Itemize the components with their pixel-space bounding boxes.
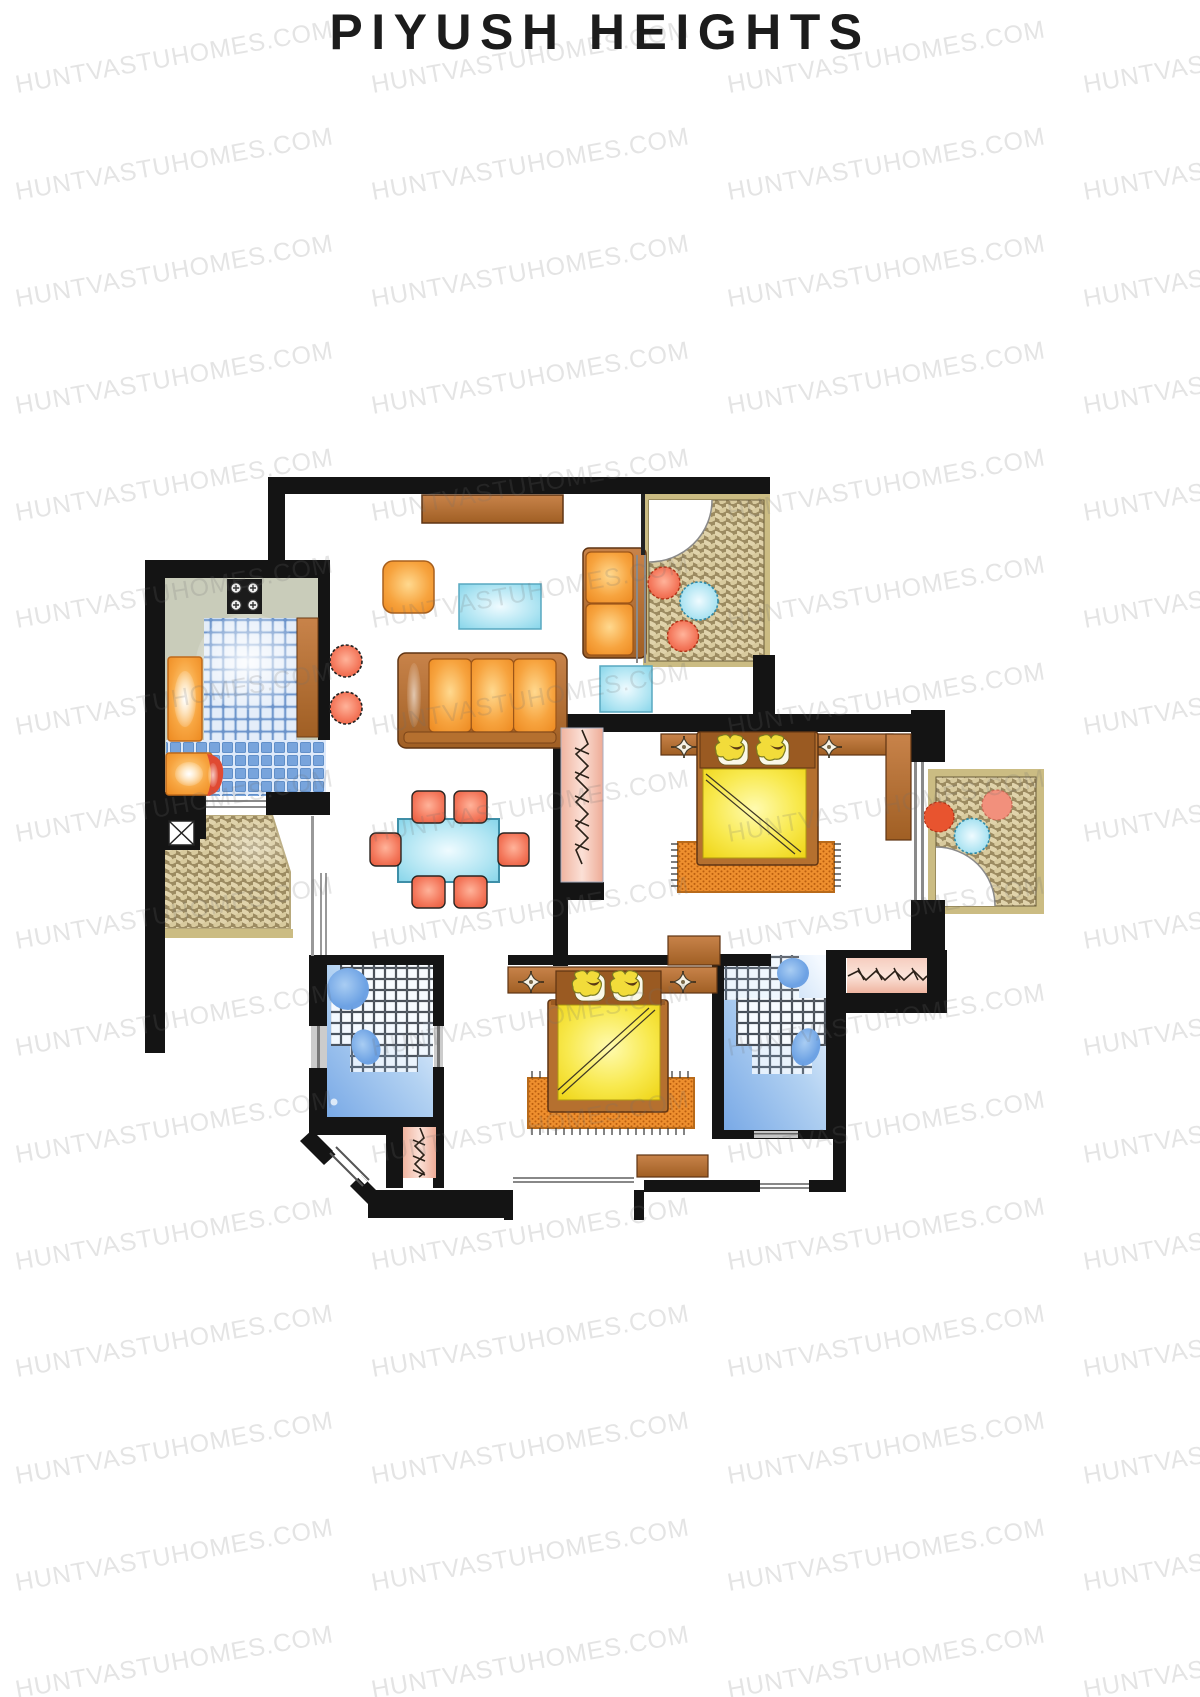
svg-text:HUNTVASTUHOMES.COM: HUNTVASTUHOMES.COM	[13, 1513, 335, 1597]
svg-text:HUNTVASTUHOMES.COM: HUNTVASTUHOMES.COM	[1081, 1192, 1200, 1276]
svg-text:HUNTVASTUHOMES.COM: HUNTVASTUHOMES.COM	[13, 1406, 335, 1490]
svg-text:HUNTVASTUHOMES.COM: HUNTVASTUHOMES.COM	[725, 1299, 1047, 1383]
svg-text:HUNTVASTUHOMES.COM: HUNTVASTUHOMES.COM	[13, 1085, 335, 1169]
svg-text:HUNTVASTUHOMES.COM: HUNTVASTUHOMES.COM	[725, 1620, 1047, 1697]
svg-text:HUNTVASTUHOMES.COM: HUNTVASTUHOMES.COM	[369, 1513, 691, 1597]
svg-text:HUNTVASTUHOMES.COM: HUNTVASTUHOMES.COM	[1081, 229, 1200, 313]
svg-text:HUNTVASTUHOMES.COM: HUNTVASTUHOMES.COM	[1081, 122, 1200, 206]
svg-text:HUNTVASTUHOMES.COM: HUNTVASTUHOMES.COM	[725, 336, 1047, 420]
svg-text:HUNTVASTUHOMES.COM: HUNTVASTUHOMES.COM	[1081, 1085, 1200, 1169]
svg-text:HUNTVASTUHOMES.COM: HUNTVASTUHOMES.COM	[369, 1406, 691, 1490]
svg-text:HUNTVASTUHOMES.COM: HUNTVASTUHOMES.COM	[1081, 1620, 1200, 1697]
svg-text:HUNTVASTUHOMES.COM: HUNTVASTUHOMES.COM	[1081, 1406, 1200, 1490]
svg-text:HUNTVASTUHOMES.COM: HUNTVASTUHOMES.COM	[13, 229, 335, 313]
svg-text:HUNTVASTUHOMES.COM: HUNTVASTUHOMES.COM	[1081, 1513, 1200, 1597]
svg-text:HUNTVASTUHOMES.COM: HUNTVASTUHOMES.COM	[1081, 336, 1200, 420]
svg-text:HUNTVASTUHOMES.COM: HUNTVASTUHOMES.COM	[13, 1299, 335, 1383]
svg-text:HUNTVASTUHOMES.COM: HUNTVASTUHOMES.COM	[1081, 443, 1200, 527]
svg-text:HUNTVASTUHOMES.COM: HUNTVASTUHOMES.COM	[13, 1620, 335, 1697]
svg-text:HUNTVASTUHOMES.COM: HUNTVASTUHOMES.COM	[13, 122, 335, 206]
svg-text:HUNTVASTUHOMES.COM: HUNTVASTUHOMES.COM	[725, 1513, 1047, 1597]
svg-text:HUNTVASTUHOMES.COM: HUNTVASTUHOMES.COM	[725, 550, 1047, 634]
svg-text:HUNTVASTUHOMES.COM: HUNTVASTUHOMES.COM	[725, 1406, 1047, 1490]
svg-text:HUNTVASTUHOMES.COM: HUNTVASTUHOMES.COM	[369, 122, 691, 206]
svg-text:HUNTVASTUHOMES.COM: HUNTVASTUHOMES.COM	[1081, 1299, 1200, 1383]
svg-text:HUNTVASTUHOMES.COM: HUNTVASTUHOMES.COM	[369, 336, 691, 420]
svg-text:HUNTVASTUHOMES.COM: HUNTVASTUHOMES.COM	[369, 229, 691, 313]
svg-text:HUNTVASTUHOMES.COM: HUNTVASTUHOMES.COM	[13, 978, 335, 1062]
svg-text:HUNTVASTUHOMES.COM: HUNTVASTUHOMES.COM	[369, 1299, 691, 1383]
svg-text:HUNTVASTUHOMES.COM: HUNTVASTUHOMES.COM	[725, 122, 1047, 206]
svg-text:HUNTVASTUHOMES.COM: HUNTVASTUHOMES.COM	[725, 443, 1047, 527]
svg-text:HUNTVASTUHOMES.COM: HUNTVASTUHOMES.COM	[725, 1192, 1047, 1276]
svg-text:HUNTVASTUHOMES.COM: HUNTVASTUHOMES.COM	[1081, 657, 1200, 741]
svg-text:HUNTVASTUHOMES.COM: HUNTVASTUHOMES.COM	[369, 1620, 691, 1697]
svg-text:HUNTVASTUHOMES.COM: HUNTVASTUHOMES.COM	[1081, 550, 1200, 634]
svg-text:HUNTVASTUHOMES.COM: HUNTVASTUHOMES.COM	[1081, 871, 1200, 955]
svg-text:HUNTVASTUHOMES.COM: HUNTVASTUHOMES.COM	[13, 1192, 335, 1276]
svg-text:HUNTVASTUHOMES.COM: HUNTVASTUHOMES.COM	[1081, 978, 1200, 1062]
svg-text:HUNTVASTUHOMES.COM: HUNTVASTUHOMES.COM	[13, 336, 335, 420]
svg-text:HUNTVASTUHOMES.COM: HUNTVASTUHOMES.COM	[725, 229, 1047, 313]
svg-text:HUNTVASTUHOMES.COM: HUNTVASTUHOMES.COM	[1081, 764, 1200, 848]
